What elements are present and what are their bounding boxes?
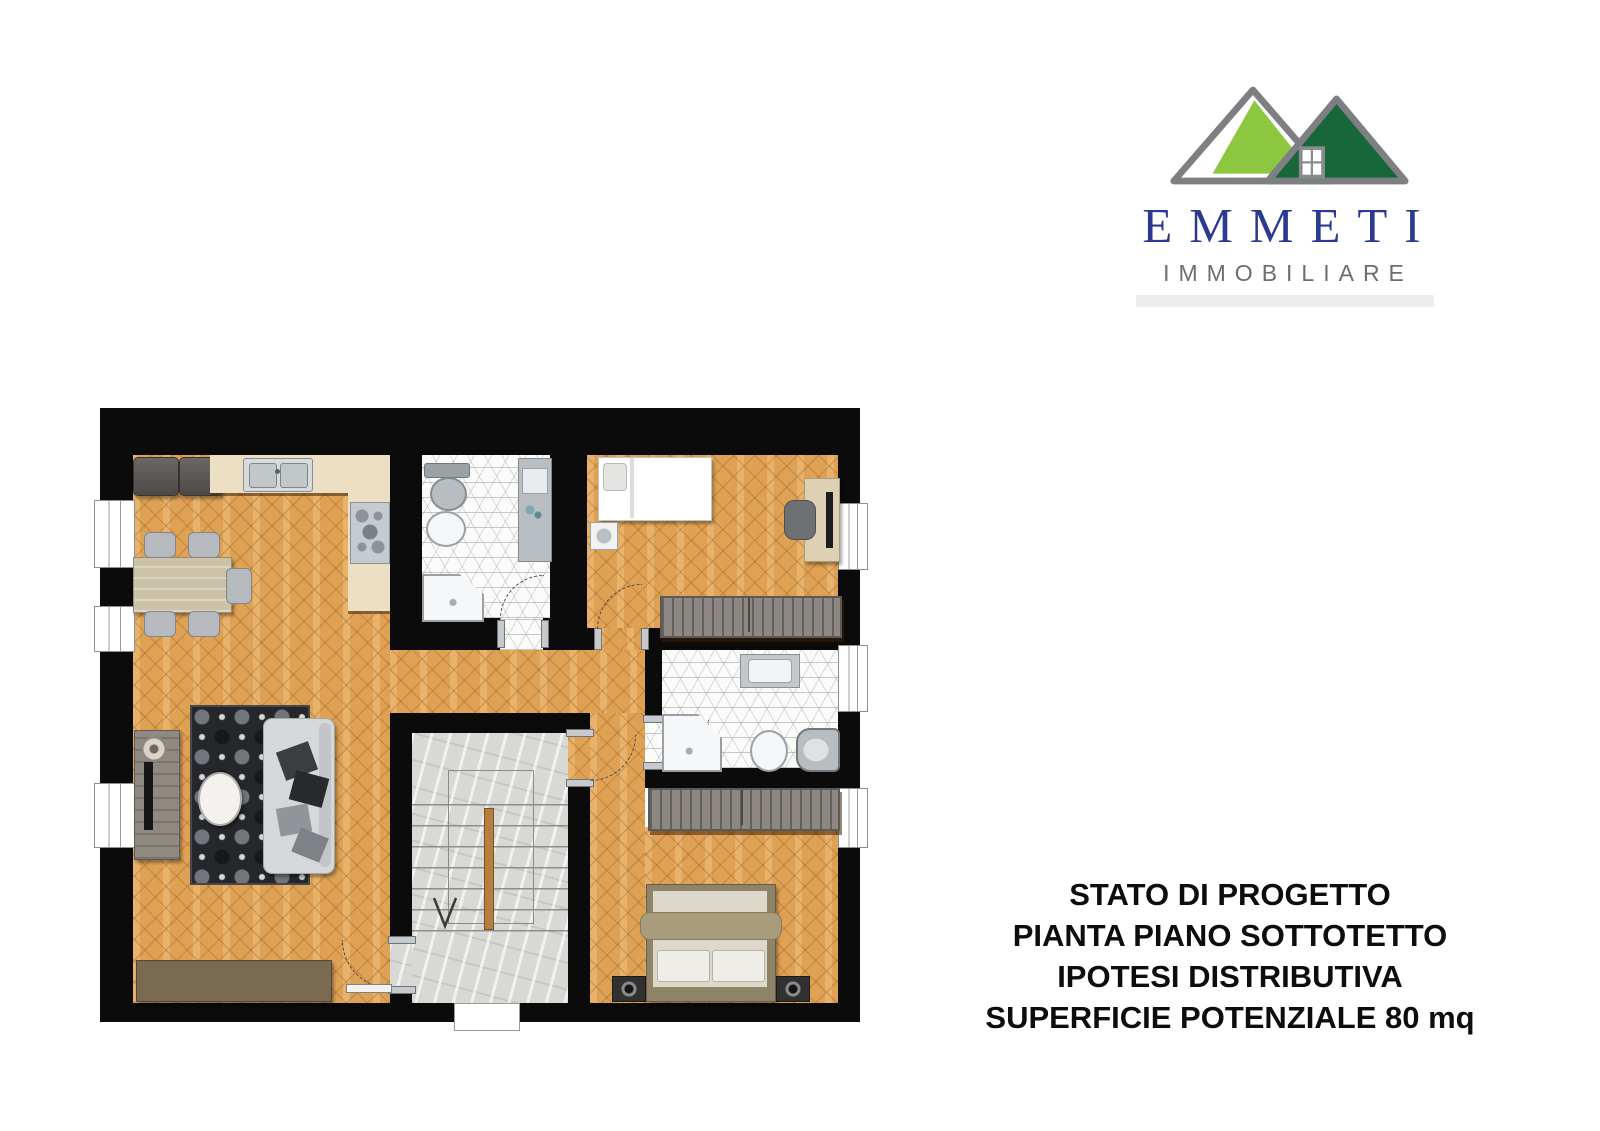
dining-chair xyxy=(226,568,252,604)
vanity-sink xyxy=(748,659,792,683)
sink-faucet xyxy=(275,469,280,474)
door-jamb xyxy=(541,620,549,648)
dining-chair xyxy=(188,611,220,637)
bed-blanket-roll xyxy=(640,912,782,940)
door-opening-living xyxy=(390,940,412,988)
bed-pillow xyxy=(657,950,710,982)
logo-subtitle: IMMOBILIARE xyxy=(1095,260,1475,287)
bed-pillow xyxy=(712,950,765,982)
door-leaf xyxy=(346,984,392,993)
caption-line-3: IPOTESI DISTRIBUTIVA xyxy=(950,956,1510,997)
desk-chair xyxy=(784,500,816,540)
door-opening-bedroom1 xyxy=(597,628,643,650)
vanity-accessories xyxy=(524,504,544,520)
door-jamb xyxy=(641,628,649,650)
tv-screen xyxy=(144,762,153,830)
stair-landing xyxy=(454,1003,520,1031)
kitchen-sink xyxy=(243,458,313,492)
toilet-tank xyxy=(424,463,470,478)
fridge xyxy=(133,457,179,496)
wall-stair-top xyxy=(390,713,590,733)
door-opening-stair xyxy=(568,733,590,782)
wall-bath2-left-a xyxy=(645,650,662,720)
sink-basin xyxy=(280,463,308,488)
window xyxy=(94,606,135,652)
nightstand-speaker xyxy=(612,976,646,1002)
door-opening-bath1 xyxy=(500,618,543,650)
desk-monitor xyxy=(826,492,833,548)
bed-blanket-fold xyxy=(630,458,634,518)
bidet xyxy=(426,511,466,547)
dining-chair xyxy=(144,611,176,637)
wall-stair-left-a xyxy=(390,733,412,940)
logo-underline-bar xyxy=(1136,295,1434,307)
bed-pillow xyxy=(603,463,627,491)
door-jamb xyxy=(388,986,416,994)
caption-line-1: STATO DI PROGETTO xyxy=(950,874,1510,915)
wall-right xyxy=(838,408,860,1022)
caption-line-2: PIANTA PIANO SOTTOTETTO xyxy=(950,915,1510,956)
nightstand xyxy=(590,522,618,550)
roof-logo-icon xyxy=(1160,78,1410,190)
door-jamb xyxy=(594,628,602,650)
window xyxy=(94,783,135,848)
toilet xyxy=(796,728,840,772)
logo-name: EMMETI xyxy=(1095,197,1475,254)
stair-rail xyxy=(484,808,494,930)
plan-caption: STATO DI PROGETTO PIANTA PIANO SOTTOTETT… xyxy=(950,874,1510,1038)
wall-stair-right xyxy=(568,782,590,1003)
stove xyxy=(350,502,390,564)
dining-chair xyxy=(188,532,220,558)
speaker xyxy=(141,736,167,762)
caption-line-4: SUPERFICIE POTENZIALE 80 mq xyxy=(950,997,1510,1038)
wardrobe xyxy=(660,596,842,638)
dining-table xyxy=(133,557,232,613)
wall-bath1-bottom-a xyxy=(422,618,500,650)
door-jamb xyxy=(497,620,505,648)
nightstand-speaker xyxy=(776,976,810,1002)
dining-chair xyxy=(144,532,176,558)
floor-hallway-top xyxy=(390,650,645,713)
sink-basin xyxy=(249,463,277,488)
wardrobe-divider xyxy=(748,598,750,632)
window xyxy=(94,500,135,568)
window xyxy=(838,503,868,570)
stair-direction-arrow-icon xyxy=(430,896,460,930)
door-opening-bath2 xyxy=(645,720,662,764)
wall-bath1-bottom-b xyxy=(543,618,587,650)
wall-top xyxy=(100,408,860,455)
window xyxy=(838,645,868,712)
toilet xyxy=(430,477,467,511)
agency-logo: EMMETI IMMOBILIARE xyxy=(1095,78,1475,307)
vanity-sink xyxy=(522,468,548,494)
wardrobe xyxy=(648,788,840,831)
coffee-table xyxy=(198,772,242,826)
floor-plan xyxy=(100,408,860,1022)
sideboard xyxy=(136,960,332,1002)
bidet xyxy=(750,730,788,772)
door-jamb xyxy=(388,936,416,944)
window xyxy=(838,788,868,848)
wall-kitchen-bath1 xyxy=(390,455,422,650)
wardrobe-divider xyxy=(741,790,743,825)
